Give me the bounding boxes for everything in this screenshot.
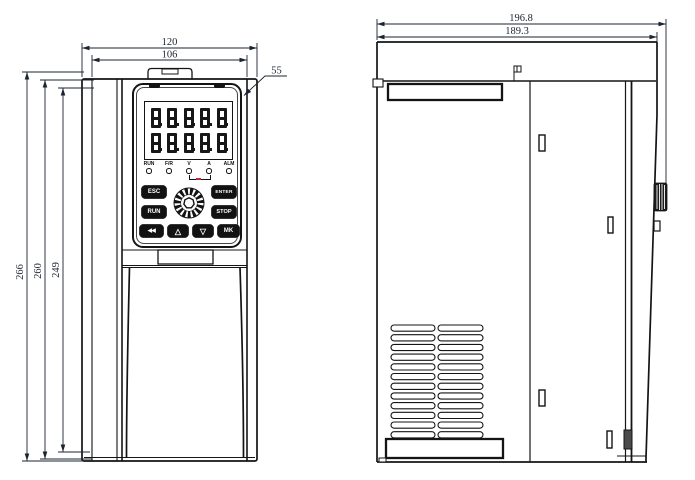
seven-seg-digit bbox=[151, 108, 161, 128]
led-indicator-row: RUN F/R V A ALM bbox=[140, 161, 238, 174]
top-flange-bracket bbox=[388, 84, 502, 100]
dim-text-55: 55 bbox=[271, 66, 282, 77]
keypad-clip bbox=[149, 84, 160, 88]
latch-slot bbox=[539, 135, 545, 151]
technical-drawing-page: 120 106 55 266 260 249 bbox=[0, 0, 695, 480]
led-label: V bbox=[187, 161, 190, 167]
vent-slots bbox=[391, 325, 483, 438]
seven-seg-digit bbox=[151, 133, 161, 153]
dim-text-120: 120 bbox=[162, 37, 178, 48]
dim-text-266: 266 bbox=[15, 264, 26, 280]
up-key: △ bbox=[167, 224, 189, 238]
foot bbox=[379, 458, 386, 462]
down-key: ▽ bbox=[192, 224, 214, 238]
drawing-lineart: 120 106 55 266 260 249 bbox=[0, 0, 695, 480]
display-row-2 bbox=[151, 133, 227, 153]
seven-seg-digit bbox=[167, 108, 177, 128]
led-lamp bbox=[186, 168, 192, 174]
seven-seg-digit bbox=[217, 133, 227, 153]
dim-text-106: 106 bbox=[162, 50, 178, 61]
enter-key: ENTER bbox=[211, 185, 237, 199]
seven-seg-digit bbox=[184, 133, 194, 153]
dim-text-196-8: 196.8 bbox=[509, 13, 533, 24]
keypad-clip bbox=[214, 84, 225, 88]
led-label: A bbox=[207, 161, 211, 167]
shift-key: ◀◀ bbox=[139, 224, 164, 238]
stop-key: STOP bbox=[211, 205, 237, 219]
tab-slot bbox=[162, 69, 178, 74]
led-lamp bbox=[206, 168, 212, 174]
front-cover-left-edge bbox=[127, 268, 130, 458]
run-key: RUN bbox=[141, 205, 167, 219]
latch-slot bbox=[539, 390, 545, 406]
seven-seg-digit bbox=[217, 108, 227, 128]
seven-seg-digit bbox=[184, 108, 194, 128]
led-label: ALM bbox=[224, 161, 235, 167]
jog-dial-knob bbox=[172, 186, 206, 220]
latch-slot bbox=[608, 217, 613, 233]
knob-clip bbox=[654, 221, 660, 231]
keypad-panel: RUN F/R V A ALM ESC ENTER RUN bbox=[132, 83, 242, 248]
dim-text-189-3: 189.3 bbox=[505, 26, 529, 37]
side-knob bbox=[654, 183, 667, 211]
led-fr: F/R bbox=[160, 161, 178, 174]
led-lamp bbox=[226, 168, 232, 174]
front-cover-right-edge bbox=[240, 268, 244, 458]
dim-text-249: 249 bbox=[51, 262, 62, 278]
led-run: RUN bbox=[140, 161, 158, 174]
dark-latch bbox=[624, 430, 632, 449]
seven-seg-digit bbox=[167, 133, 177, 153]
seven-seg-digit bbox=[200, 133, 210, 153]
side-dimensions bbox=[377, 19, 666, 186]
led-v: V bbox=[180, 161, 198, 174]
seven-seg-digit bbox=[200, 108, 210, 128]
esc-key: ESC bbox=[141, 185, 167, 199]
side-left-notch bbox=[373, 79, 383, 87]
led-unit-tick bbox=[196, 178, 201, 180]
seven-segment-display bbox=[144, 101, 233, 160]
led-label: RUN bbox=[144, 161, 155, 167]
display-row-1 bbox=[151, 108, 227, 128]
flag-mark bbox=[514, 66, 521, 81]
dim-text-260: 260 bbox=[33, 263, 44, 279]
mk-key: MK bbox=[217, 224, 240, 238]
cover-latch bbox=[158, 250, 213, 264]
led-lamp bbox=[146, 168, 152, 174]
bottom-flange-bracket bbox=[386, 439, 503, 458]
led-alm: ALM bbox=[220, 161, 238, 174]
led-a: A bbox=[200, 161, 218, 174]
latch-slot bbox=[607, 431, 612, 448]
side-front-face bbox=[646, 42, 657, 462]
led-lamp bbox=[166, 168, 172, 174]
led-label: F/R bbox=[165, 161, 173, 167]
